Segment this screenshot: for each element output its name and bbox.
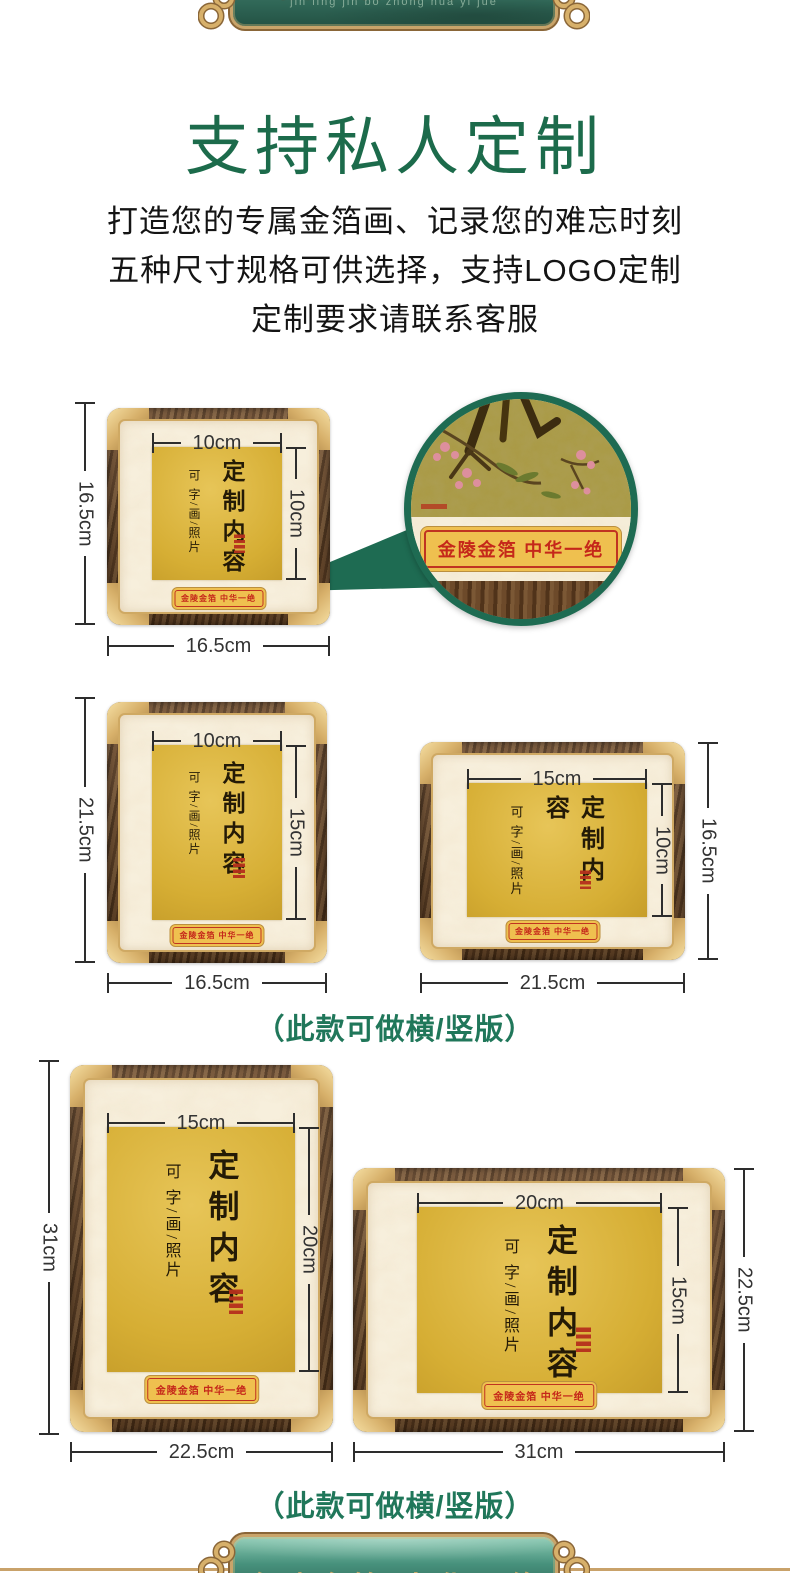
dim-outer-width: 21.5cm <box>420 971 685 995</box>
custom-area: 定制内容 可 字/画/照片 <box>152 447 282 580</box>
dim-label: 21.5cm <box>508 972 598 995</box>
artisan-seal-icon <box>578 866 593 890</box>
brand-label: 金陵金箔 中华一绝 <box>173 927 262 944</box>
dim-label: 10cm <box>181 730 254 753</box>
dim-label: 20cm <box>298 1215 321 1284</box>
dim-label: 31cm <box>503 1441 576 1464</box>
dim-inner-height: 10cm <box>283 447 309 580</box>
artisan-seal-icon <box>231 854 247 880</box>
top-banner-plaque: 金陵金箔 中华一绝 jin ling jin bo zhong hua yi j… <box>233 0 555 26</box>
custom-area-text: 定制内容 可 字/画/照片 <box>507 795 608 917</box>
dim-outer-height: 16.5cm <box>695 742 721 960</box>
custom-area-text: 定制内容 可 字/画/照片 <box>497 1224 582 1388</box>
custom-area: 定制内容 可 字/画/照片 <box>417 1207 662 1393</box>
dim-label: 22.5cm <box>157 1441 247 1464</box>
dim-outer-width: 16.5cm <box>107 634 330 658</box>
brand-label: 金陵金箔 中华一绝 <box>508 923 597 940</box>
dim-label: 10cm <box>181 432 254 455</box>
dim-outer-width: 16.5cm <box>107 971 327 995</box>
bottom-banner-plaque: 金陵金箔 中华一绝 <box>233 1537 555 1573</box>
custom-area: 定制内容 可 字/画/照片 <box>467 783 647 917</box>
intro-line-3: 定制要求请联系客服 <box>0 294 790 339</box>
brand-label: 金陵金箔 中华一绝 <box>174 590 263 607</box>
dim-outer-height: 16.5cm <box>72 402 98 625</box>
gold-foil-artwork <box>411 399 631 517</box>
artwork-signature-mark <box>421 504 447 509</box>
custom-area: 定制内容 可 字/画/照片 <box>107 1127 295 1372</box>
custom-options-text: 可 字/画/照片 <box>186 771 203 881</box>
custom-text: 定制内容 <box>538 795 608 917</box>
dim-inner-width: 15cm <box>467 767 647 791</box>
dim-inner-width: 15cm <box>107 1111 295 1135</box>
intro-line-2: 五种尺寸规格可供选择，支持LOGO定制 <box>0 245 790 290</box>
top-banner-pinyin: jin ling jin bo zhong hua yi jue <box>233 0 555 8</box>
dim-inner-width: 10cm <box>152 431 282 455</box>
custom-options-text: 可 字/画/照片 <box>159 1163 183 1313</box>
custom-area: 定制内容 可 字/画/照片 <box>152 745 282 920</box>
custom-options-text: 可 字/画/照片 <box>497 1238 521 1388</box>
dim-outer-width: 22.5cm <box>70 1440 333 1464</box>
bottom-banner-left-scroll-icon <box>198 1540 238 1573</box>
dim-label: 15cm <box>285 798 308 867</box>
custom-options-text: 可 字/画/照片 <box>507 805 526 917</box>
orientation-caption: （此款可做横/竖版） <box>0 1483 790 1525</box>
top-banner-left-scroll-icon <box>198 0 238 30</box>
zoom-detail-circle: 金陵金箔 中华一绝 <box>404 392 638 626</box>
dim-label: 31cm <box>38 1213 61 1282</box>
artisan-seal-icon <box>573 1322 593 1354</box>
page-title: 支持私人定制 <box>0 96 790 188</box>
dim-label: 21.5cm <box>74 787 97 873</box>
dim-outer-height: 21.5cm <box>72 697 98 963</box>
product-detail-page: 金陵金箔 中华一绝 jin ling jin bo zhong hua yi j… <box>0 0 790 1573</box>
dim-outer-height: 31cm <box>36 1060 62 1435</box>
dim-label: 16.5cm <box>74 471 97 557</box>
bottom-banner-right-scroll-icon <box>550 1540 590 1573</box>
mat-band-zoomed: 金陵金箔 中华一绝 <box>411 517 631 581</box>
dim-label: 10cm <box>285 479 308 548</box>
dim-label: 15cm <box>667 1266 690 1335</box>
artisan-seal-icon <box>226 1284 246 1316</box>
dim-label: 16.5cm <box>697 808 720 894</box>
intro-line-1: 打造您的专属金箔画、记录您的难忘时刻 <box>0 196 790 241</box>
brand-label: 金陵金箔 中华一绝 <box>484 1384 594 1407</box>
dim-label: 20cm <box>503 1192 576 1215</box>
dim-inner-height: 15cm <box>665 1207 691 1393</box>
dim-inner-width: 20cm <box>417 1191 662 1215</box>
orientation-caption: （此款可做横/竖版） <box>0 1006 790 1048</box>
custom-area-text: 定制内容 可 字/画/照片 <box>186 459 248 579</box>
bottom-banner-title: 金陵金箔 中华一绝 <box>233 1563 555 1573</box>
dim-label: 10cm <box>651 816 674 885</box>
dim-label: 15cm <box>165 1112 238 1135</box>
dim-inner-height: 20cm <box>296 1127 322 1372</box>
brand-label: 金陵金箔 中华一绝 <box>147 1378 257 1401</box>
custom-options-text: 可 字/画/照片 <box>186 469 203 579</box>
top-banner-right-scroll-icon <box>550 0 590 30</box>
frame-mat: 定制内容 可 字/画/照片 金陵金箔 中华一绝 <box>368 1183 710 1417</box>
dim-inner-height: 10cm <box>649 783 675 917</box>
dim-inner-height: 15cm <box>283 745 309 920</box>
brand-label-zoomed: 金陵金箔 中华一绝 <box>424 530 619 568</box>
dim-label: 16.5cm <box>172 972 262 995</box>
dim-outer-width: 31cm <box>353 1440 725 1464</box>
dim-label: 22.5cm <box>733 1257 756 1343</box>
custom-text: 定制内容 <box>214 459 248 579</box>
dim-label: 15cm <box>521 768 594 791</box>
dim-label: 16.5cm <box>174 635 264 658</box>
artisan-seal-icon <box>232 531 247 555</box>
custom-text: 定制内容 <box>537 1224 582 1388</box>
top-banner-red-divider <box>248 28 540 31</box>
dim-inner-width: 10cm <box>152 729 282 753</box>
dim-outer-height: 22.5cm <box>731 1168 757 1432</box>
wood-frame-zoomed <box>411 581 631 619</box>
